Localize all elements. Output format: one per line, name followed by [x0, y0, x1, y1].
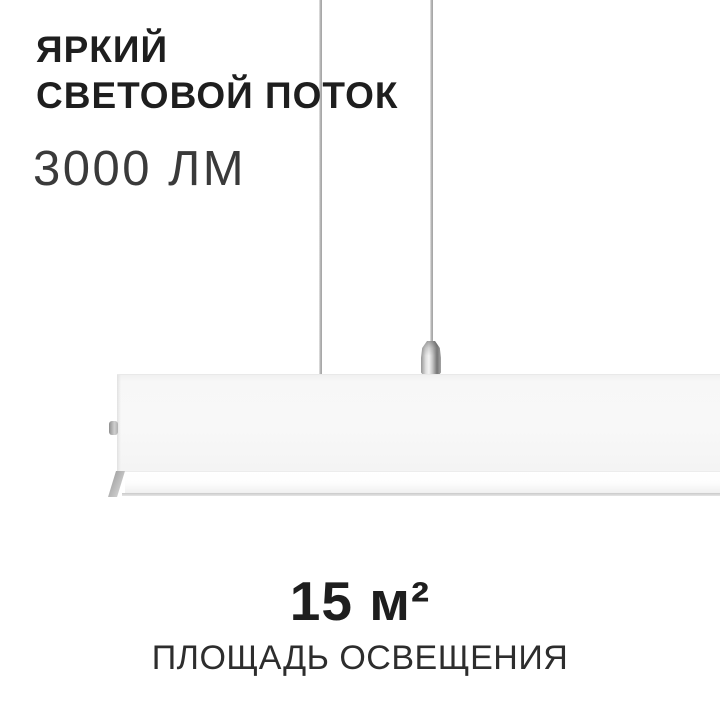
side-screw — [109, 421, 118, 435]
product-card: ЯРКИЙ СВЕТОВОЙ ПОТОК 3000 ЛМ 15 м² ПЛОЩА… — [0, 0, 720, 720]
headline-line-2: СВЕТОВОЙ ПОТОК — [36, 73, 398, 119]
coverage-area-value: 15 м² — [0, 568, 720, 634]
light-diffuser — [125, 471, 720, 494]
lamp-body — [117, 374, 720, 471]
coverage-area-label: ПЛОЩАДЬ ОСВЕЩЕНИЯ — [0, 638, 720, 679]
bottom-rim — [122, 493, 720, 496]
luminous-flux-value: 3000 ЛМ — [33, 140, 246, 199]
headline-line-1: ЯРКИЙ — [36, 27, 398, 73]
headline: ЯРКИЙ СВЕТОВОЙ ПОТОК — [36, 27, 398, 119]
